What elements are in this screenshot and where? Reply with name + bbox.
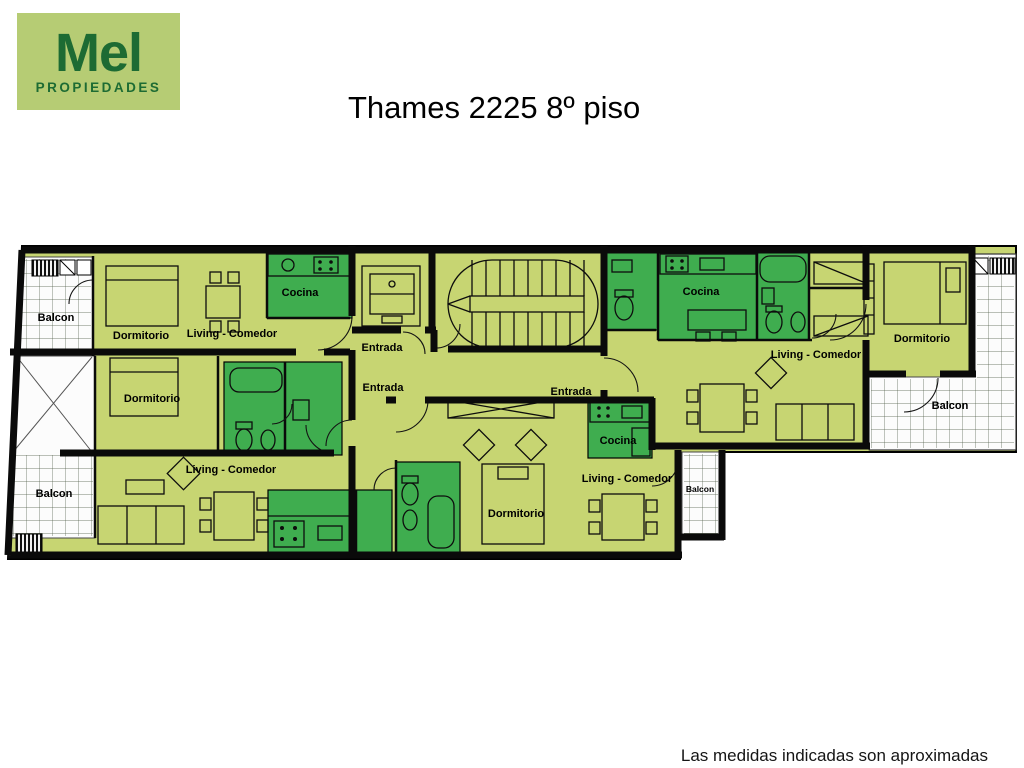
room-label-balcon-right: Balcon (932, 400, 969, 412)
room-label-living-bottom-left: Living - Comedor (186, 464, 276, 476)
floor-plan-sheet: Mel PROPIEDADES Thames 2225 8º piso (0, 0, 1024, 768)
disclaimer-note: Las medidas indicadas son aproximadas (681, 746, 988, 766)
vent-hatch (32, 260, 58, 276)
room-label-balcon-mid-left: Balcon (36, 488, 73, 500)
room-label-cocina-bottom-center: Cocina (600, 435, 637, 447)
room-label-entrada-2: Entrada (363, 382, 404, 394)
room-label-entrada-1: Entrada (362, 342, 403, 354)
room-label-cocina-top-right: Cocina (683, 286, 720, 298)
room-label-balcon-bottom-center: Balcon (686, 484, 714, 494)
room-label-balcon-top-left: Balcon (38, 312, 75, 324)
room-label-cocina-top-left: Cocina (282, 287, 319, 299)
room-label-living-right: Living - Comedor (771, 349, 861, 361)
room-label-dormitorio-right: Dormitorio (894, 333, 950, 345)
floor-plan-drawing (0, 0, 1024, 768)
room-label-entrada-3: Entrada (551, 386, 592, 398)
room-label-dormitorio-top-left: Dormitorio (113, 330, 169, 342)
vent-hatch (990, 258, 1015, 274)
room-label-living-top-left: Living - Comedor (187, 328, 277, 340)
room-label-dormitorio-mid-left: Dormitorio (124, 393, 180, 405)
vent-hatch (16, 534, 42, 554)
room-label-dormitorio-bottom-center: Dormitorio (488, 508, 544, 520)
room-label-living-bottom-center: Living - Comedor (582, 473, 672, 485)
